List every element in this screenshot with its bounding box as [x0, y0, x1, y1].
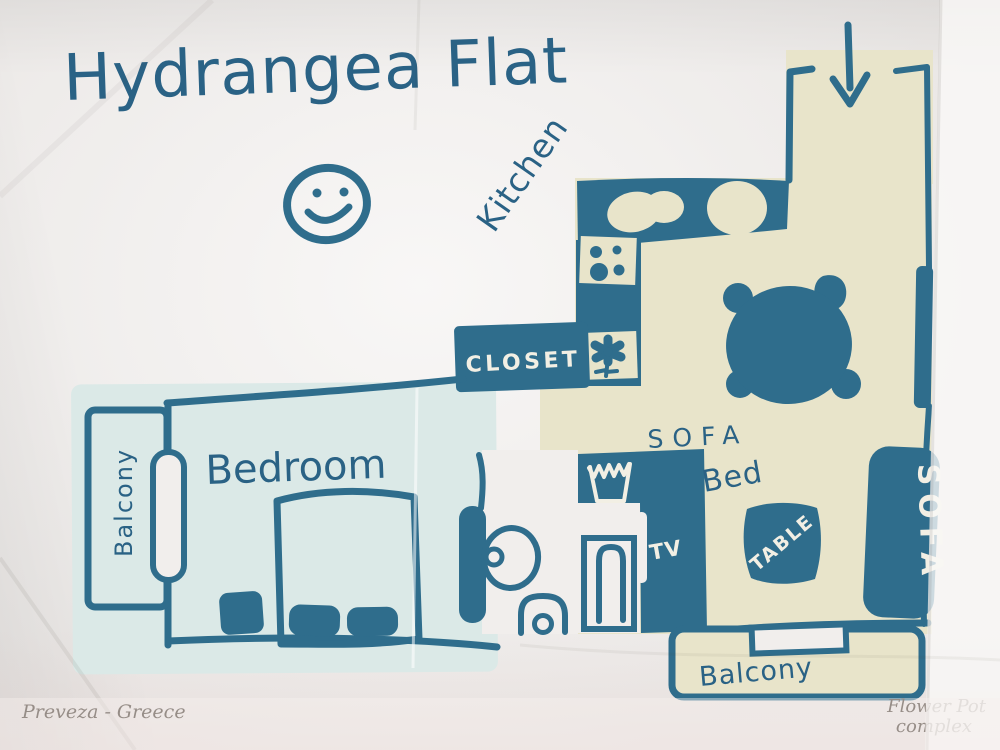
kitchen-label: Kitchen [469, 109, 576, 239]
complex-caption-line1: Flower Pot [886, 696, 987, 717]
sofa: SOFA [862, 446, 949, 620]
bed-pillow [347, 607, 398, 637]
location-caption: Preveza - Greece [21, 701, 186, 723]
bed-pillow [288, 604, 340, 637]
bedroom-label: Bedroom [205, 442, 387, 494]
complex-caption-line2: complex [896, 716, 972, 737]
coffee-table: TABLE [744, 503, 821, 584]
balcony-door [752, 624, 847, 653]
door-icon [153, 452, 184, 580]
smiley-face-icon [282, 163, 371, 245]
left-balcony-label: Balcony [110, 448, 138, 557]
closet: CLOSET [454, 322, 590, 393]
bathroom-door [584, 538, 634, 629]
nightstand [219, 591, 265, 636]
door-gap [636, 512, 647, 583]
plan-title: Hydrangea Flat [62, 24, 569, 116]
bottom-balcony: Balcony [672, 624, 922, 697]
flower-icon [581, 331, 638, 380]
sofa-label: SOFA [910, 463, 949, 584]
sofa-bed-line1: SOFA [647, 420, 749, 454]
dining-table-icon [720, 275, 861, 410]
floor-plan-drawing: CLOSET Balcony Bedroom [0, 0, 1000, 750]
floor-plan-photo: CLOSET Balcony Bedroom [0, 0, 1000, 750]
bathroom-doorway-wall [479, 455, 483, 508]
stove-burners-icon [579, 236, 637, 285]
